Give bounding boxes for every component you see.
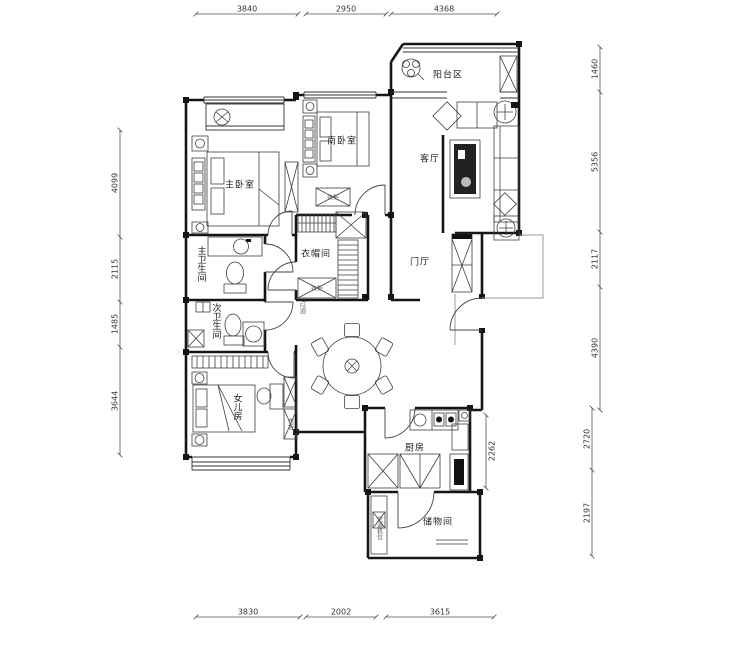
room-label-ac-shaft: 空调机位 — [375, 516, 384, 540]
dim-right-5: 2720 — [583, 429, 592, 449]
balcony-plant — [402, 59, 424, 80]
balcony-louver — [500, 56, 517, 92]
dim-right-2: 5356 — [591, 152, 600, 172]
room-label-master-bedroom: 主卧室 — [225, 178, 255, 191]
wardrobe-label-south: 衣柜 — [327, 193, 339, 202]
porch-outline — [455, 235, 543, 345]
floorplan-page: 阳台区 客厅 南卧室 主卧室 主卫生间 次卫生间 衣帽间 门厅 女儿房 厨房 储… — [0, 0, 740, 650]
room-label-foyer: 门厅 — [410, 255, 430, 268]
foyer-cabinet — [452, 234, 472, 292]
room-label-living: 客厅 — [420, 152, 440, 165]
dim-kitchen-side: 2262 — [488, 441, 497, 461]
room-label-south-bedroom: 南卧室 — [327, 134, 357, 147]
room-label-corridor: 过道 — [298, 300, 308, 314]
room-label-cloakroom: 衣帽间 — [301, 247, 331, 260]
dim-right-6: 2197 — [583, 503, 592, 523]
room-label-second-bath: 次卫生间 — [210, 303, 223, 339]
dimension-lines — [120, 14, 600, 617]
dining-set — [311, 324, 394, 409]
master-bed-group — [192, 109, 298, 233]
wardrobe-label-cloakroom: 衣柜 — [311, 284, 323, 293]
dim-bottom-1: 3830 — [238, 608, 258, 617]
dim-right-3: 2117 — [591, 249, 600, 269]
dim-bottom-3: 3615 — [430, 608, 450, 617]
dim-right-4: 4390 — [591, 338, 600, 358]
second-bath-fixtures — [188, 314, 264, 347]
doors — [265, 185, 482, 528]
dim-top-2: 2950 — [336, 5, 356, 14]
dim-left-3: 1485 — [111, 314, 120, 334]
dim-left-2: 2115 — [111, 259, 120, 279]
dim-bottom-2: 2002 — [331, 608, 351, 617]
daughter-room-group — [192, 356, 297, 446]
room-label-storage: 储物间 — [423, 515, 453, 528]
storage-fittings — [371, 496, 468, 554]
room-label-daughter-room: 女儿房 — [231, 394, 244, 421]
dim-top-3: 4368 — [434, 5, 454, 14]
room-label-balcony: 阳台区 — [433, 68, 463, 81]
dim-right-1: 1460 — [591, 59, 600, 79]
room-label-kitchen: 厨房 — [405, 441, 425, 454]
wardrobe-label-daughter: 衣柜 — [286, 418, 295, 430]
dim-left-1: 4099 — [111, 173, 120, 193]
dim-top-1: 3840 — [237, 5, 257, 14]
dim-left-4: 3644 — [111, 391, 120, 411]
living-sofa-set — [433, 101, 519, 240]
south-bed-group — [303, 100, 369, 206]
room-label-master-bath: 主卫生间 — [195, 246, 208, 282]
